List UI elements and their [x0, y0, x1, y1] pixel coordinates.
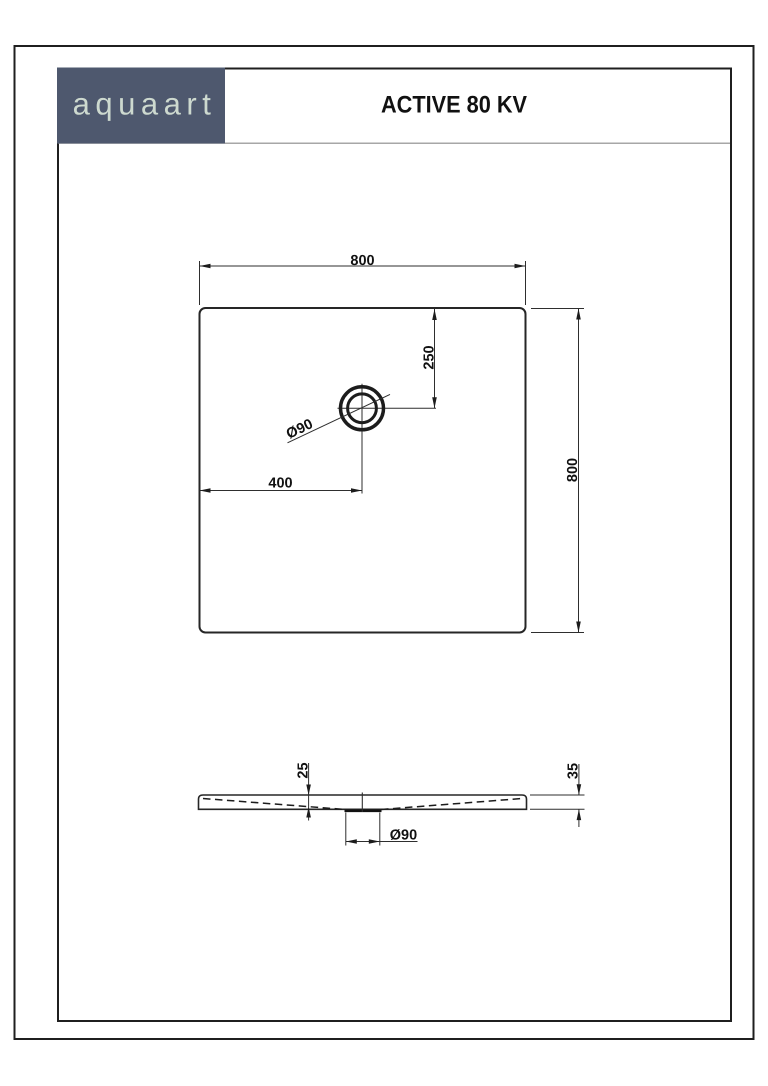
svg-text:aquaart: aquaart	[73, 87, 217, 122]
svg-text:Ø90: Ø90	[390, 828, 417, 844]
svg-text:250: 250	[422, 345, 438, 369]
svg-text:ACTIVE 80 KV: ACTIVE 80 KV	[381, 92, 527, 119]
svg-text:35: 35	[565, 763, 581, 779]
svg-text:400: 400	[268, 476, 292, 492]
svg-text:800: 800	[565, 458, 581, 482]
svg-text:800: 800	[350, 253, 374, 269]
svg-text:25: 25	[296, 762, 312, 778]
